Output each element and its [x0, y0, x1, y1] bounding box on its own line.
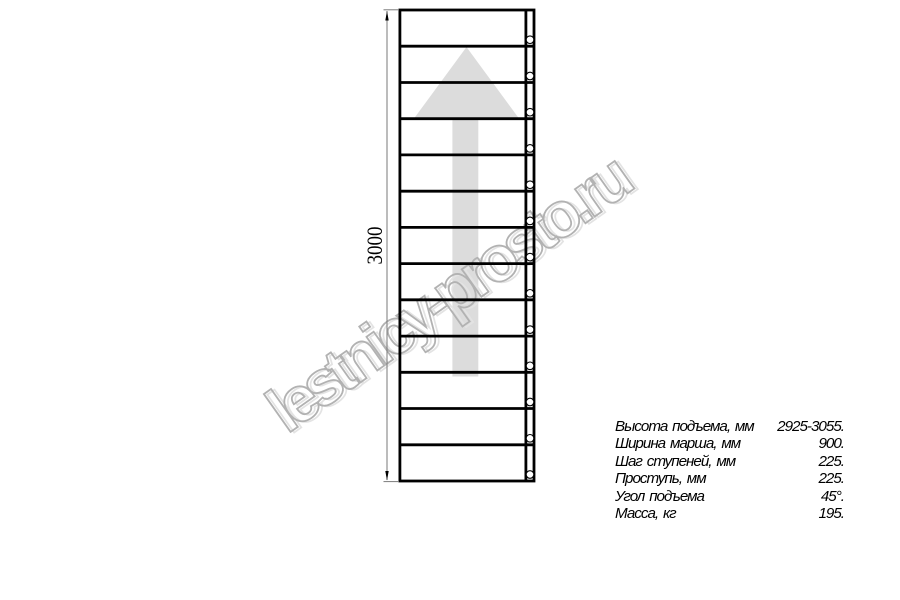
svg-text:lestnicy-prosto.ru: lestnicy-prosto.ru	[253, 141, 642, 446]
svg-text:3000: 3000	[362, 227, 387, 265]
